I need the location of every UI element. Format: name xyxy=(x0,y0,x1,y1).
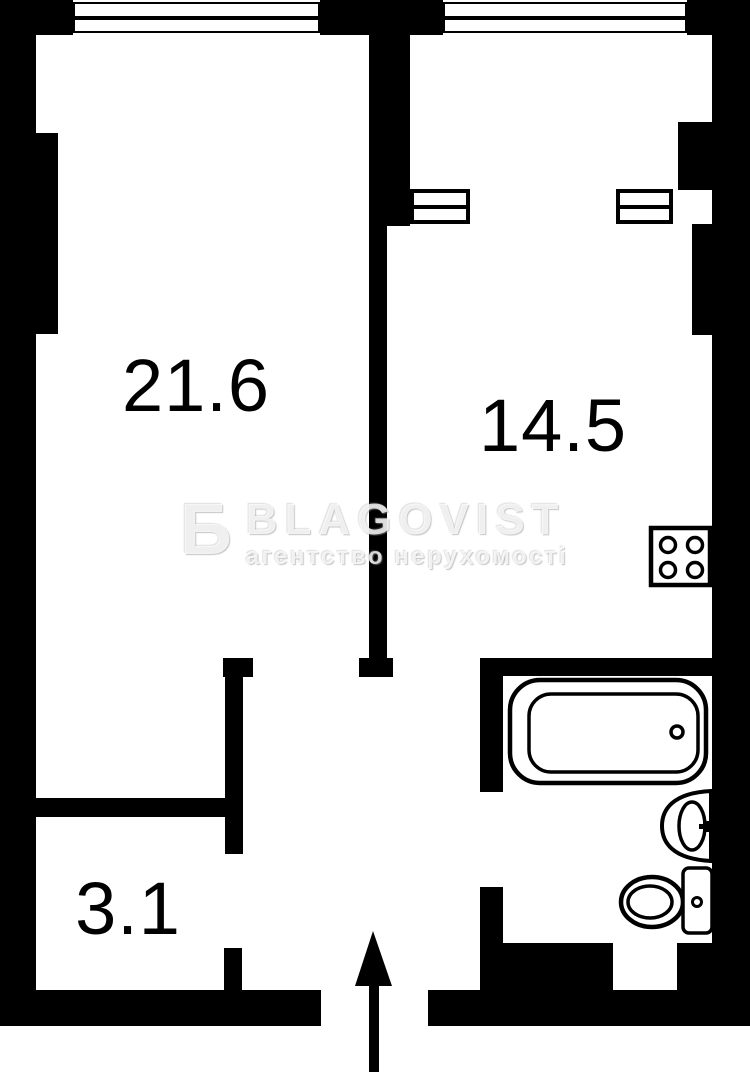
entrance-arrow-icon xyxy=(355,931,392,1072)
watermark-tagline: агентство нерухомості xyxy=(246,544,568,570)
floor-plan: 21.6 14.5 3.1 xyxy=(0,0,750,1076)
sink-icon xyxy=(662,791,712,861)
blagovist-logo-icon: Б xyxy=(180,498,232,562)
watermark-brand: BLAGOVIST xyxy=(246,498,568,542)
watermark: Б BLAGOVIST агентство нерухомості xyxy=(180,498,570,570)
toilet-icon xyxy=(621,868,712,933)
stove-icon xyxy=(651,528,710,585)
bathtub-icon xyxy=(510,680,706,783)
